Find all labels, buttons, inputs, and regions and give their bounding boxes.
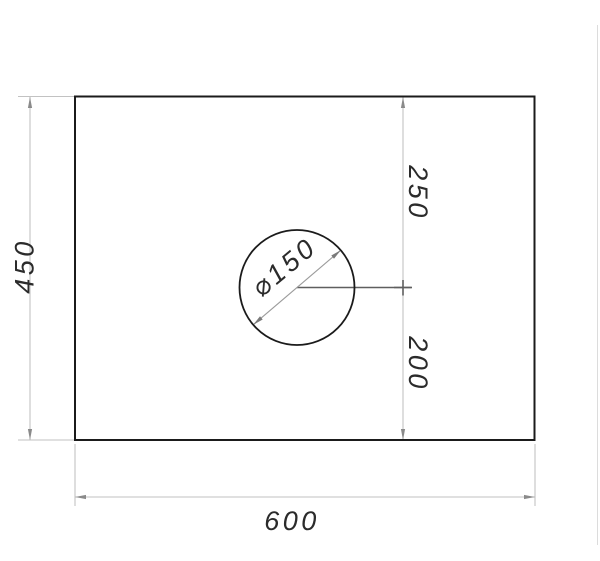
- arrow-down-icon: [401, 429, 405, 440]
- height-dimension-label: 450: [10, 238, 40, 294]
- arrow-up-icon: [401, 97, 405, 108]
- cad-drawing: 450 600 250 200 ⌀150: [0, 0, 600, 561]
- height-dimension-450[interactable]: 450: [10, 97, 77, 441]
- width-dimension-label: 600: [264, 506, 320, 536]
- width-dimension-600[interactable]: 600: [75, 444, 535, 536]
- hole-diameter-dimension[interactable]: ⌀150: [246, 231, 412, 325]
- arrow-right-icon: [524, 495, 535, 499]
- offset-bottom-dimension-label: 200: [403, 335, 433, 392]
- arrow-left-icon: [75, 495, 86, 499]
- hole-diameter-label: ⌀150: [246, 231, 323, 302]
- arrow-down-icon: [28, 429, 32, 440]
- arrow-up-icon: [28, 97, 32, 108]
- offset-dimensions-250-200[interactable]: 250 200: [394, 97, 433, 440]
- drawing-canvas: 450 600 250 200 ⌀150: [0, 0, 600, 561]
- offset-top-dimension-label: 250: [403, 164, 433, 221]
